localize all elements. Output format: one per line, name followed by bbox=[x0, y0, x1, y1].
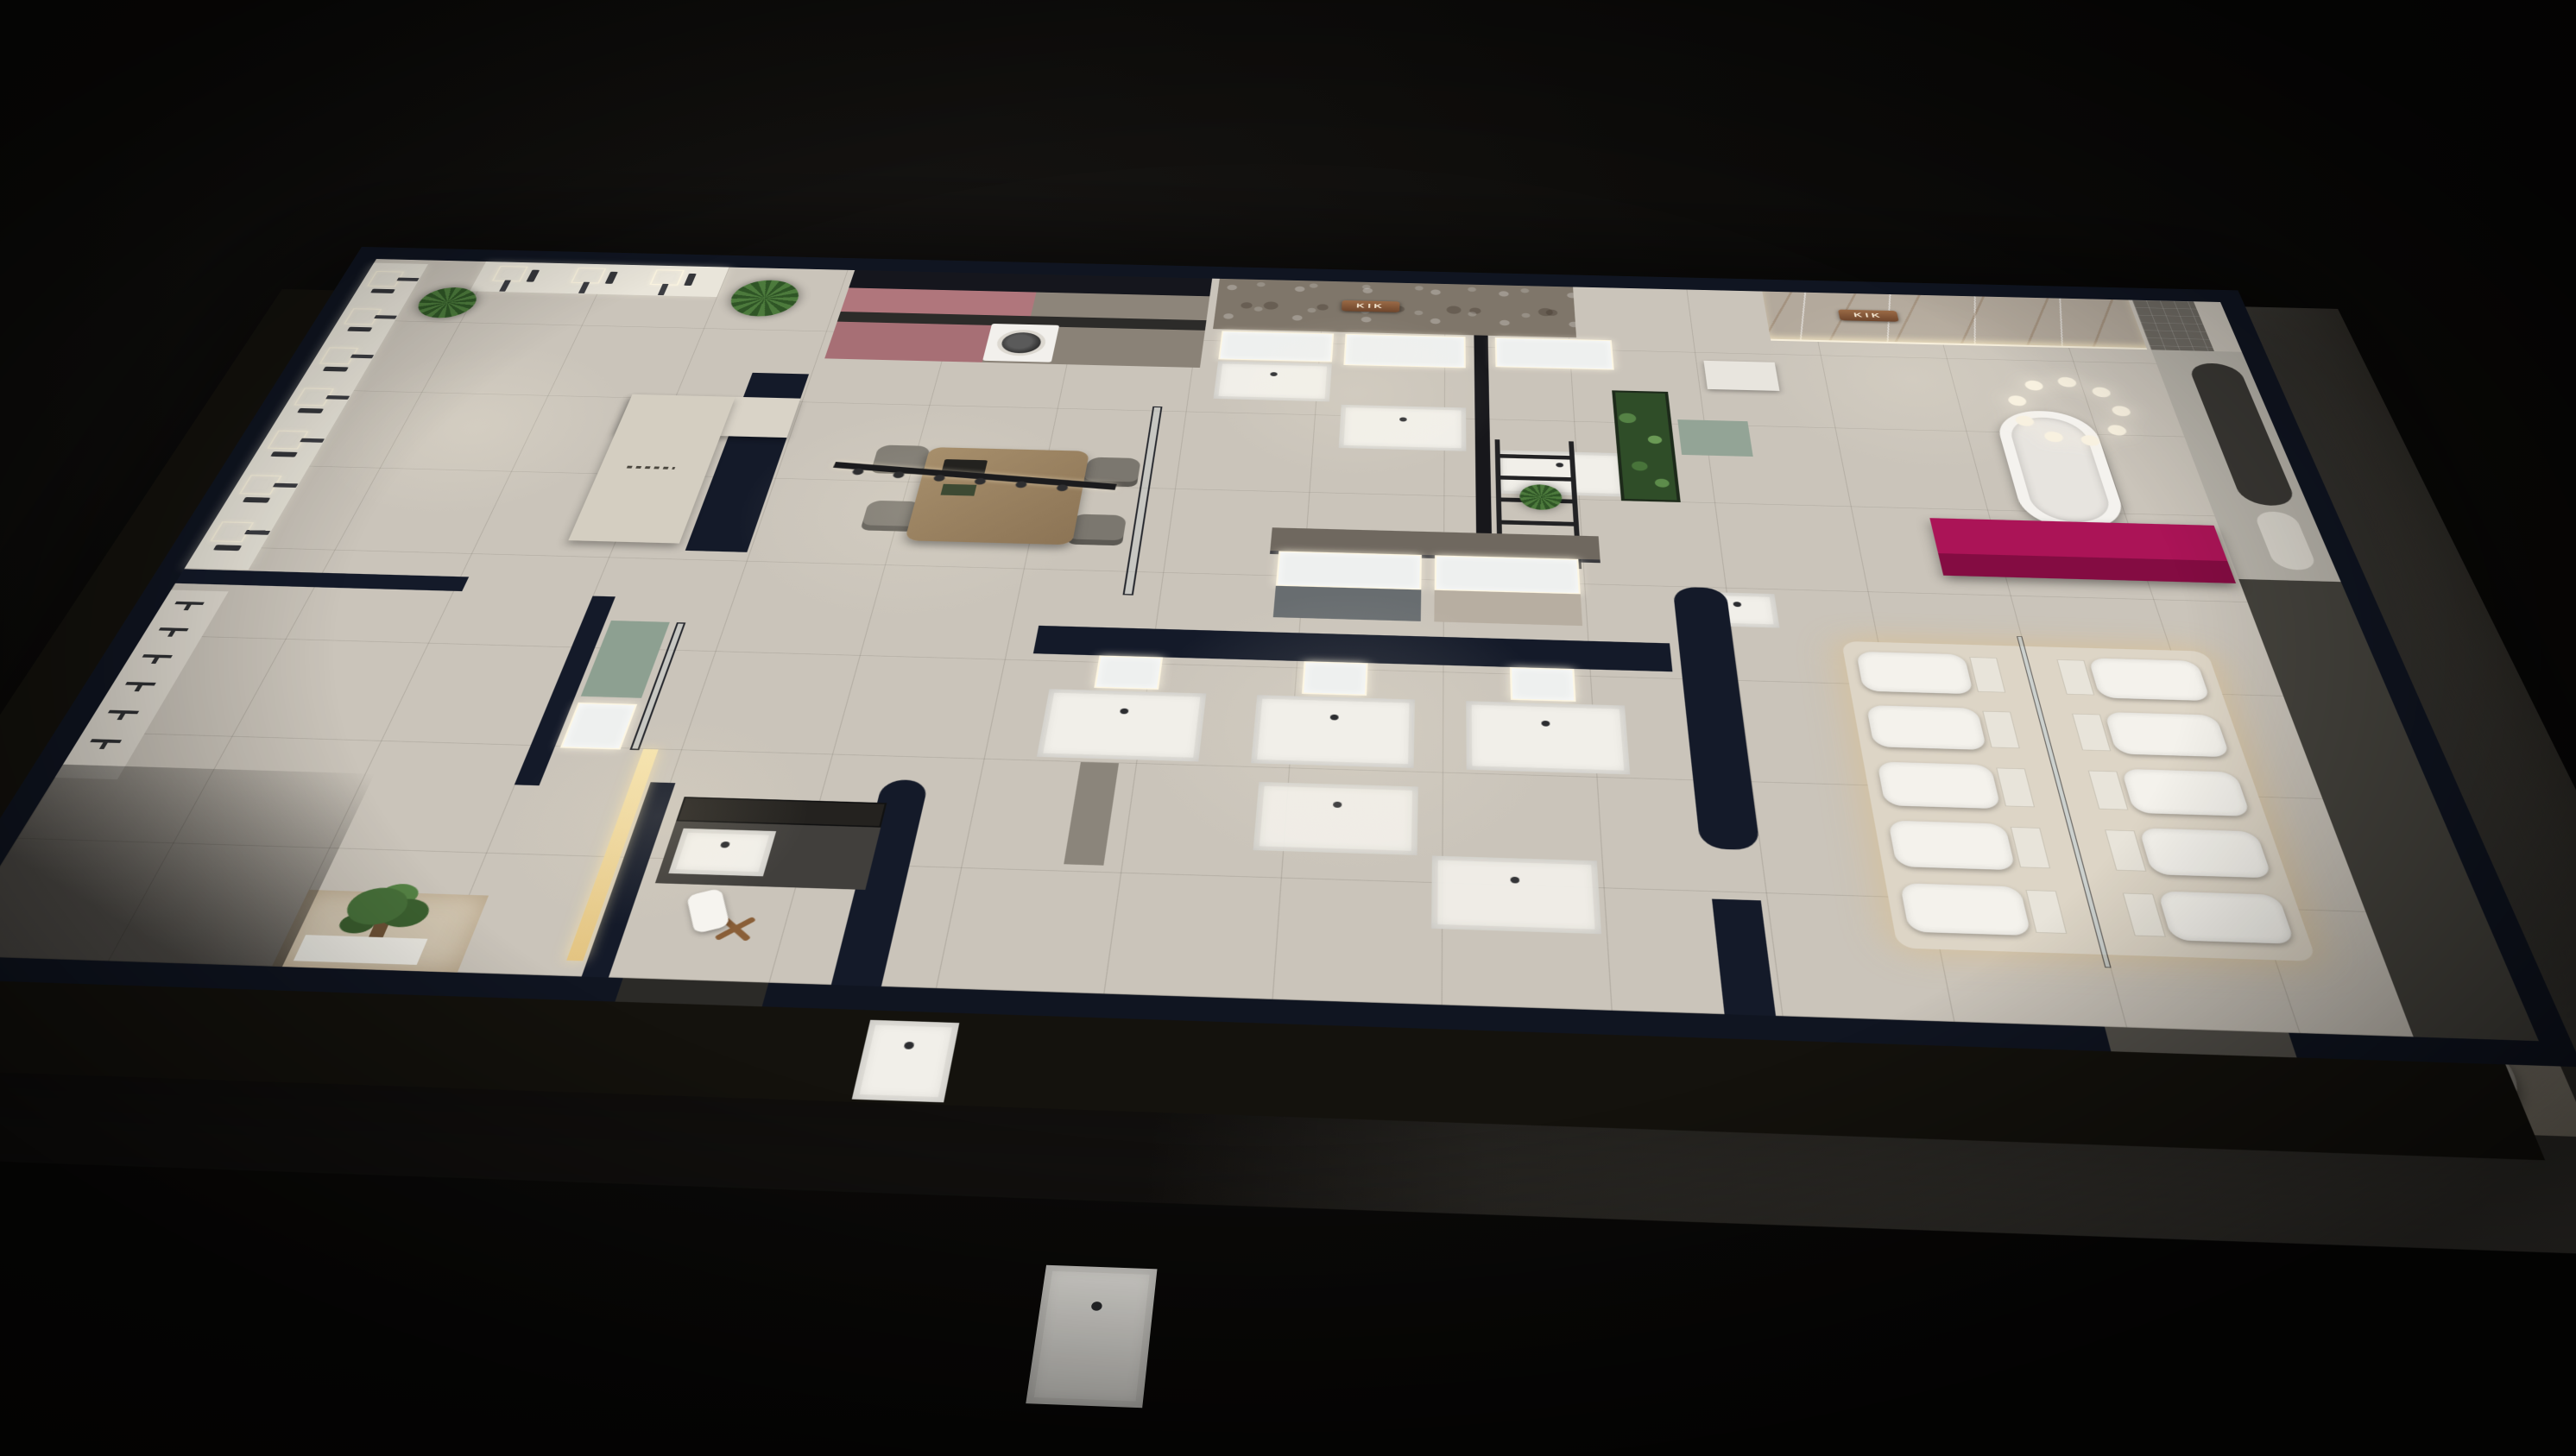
faucet-display-row bbox=[91, 707, 157, 721]
toilet-tank bbox=[2105, 830, 2147, 872]
display-toilet bbox=[2029, 654, 2212, 703]
white-cabinet bbox=[1704, 361, 1780, 391]
shower-column-unit bbox=[477, 262, 564, 292]
toilet-bowl bbox=[1877, 761, 2001, 809]
bottom-vanity-unit bbox=[1466, 665, 1632, 790]
faucet-display-row bbox=[73, 736, 140, 751]
kik-sign-marble: KIK bbox=[1838, 309, 1899, 321]
toilet-bowl bbox=[2105, 712, 2231, 757]
island-vanity-cabinet-beige bbox=[1434, 590, 1582, 626]
sage-room-mirror bbox=[560, 703, 637, 750]
toilet-bowl bbox=[2139, 829, 2273, 879]
kik-sign-stone: KIK bbox=[1342, 300, 1400, 312]
island-vanity-mirror bbox=[1435, 555, 1581, 594]
shower-column-unit bbox=[350, 266, 426, 303]
island-vanity-basin bbox=[1253, 782, 1418, 855]
shower-column-unit bbox=[189, 515, 278, 564]
vanity-basin bbox=[1466, 701, 1630, 774]
toilet-tank bbox=[1969, 657, 2005, 692]
side-door-gap bbox=[616, 978, 769, 1006]
shower-column-unit bbox=[219, 469, 306, 514]
toilet-bowl bbox=[1856, 652, 1973, 694]
sage-wall-hung-cabinet bbox=[1677, 419, 1752, 457]
vanity-basin bbox=[1037, 689, 1206, 761]
island-vanity-cabinet-grey bbox=[1273, 586, 1422, 621]
display-toilet bbox=[2059, 765, 2252, 818]
dining-table bbox=[905, 447, 1089, 545]
vanity-mirror bbox=[1510, 667, 1576, 702]
corner-basin bbox=[852, 1020, 960, 1103]
display-toilet bbox=[2043, 709, 2231, 760]
toilet-bowl bbox=[1888, 821, 2016, 871]
vanity-mirror bbox=[1218, 331, 1334, 362]
display-toilet bbox=[1856, 650, 2034, 698]
toilet-display-platform bbox=[1841, 641, 2317, 961]
showroom-building: KIK bbox=[0, 247, 2576, 1067]
shower-column-unit bbox=[636, 265, 720, 295]
toilet-bowl bbox=[2121, 768, 2251, 816]
vanity-basin bbox=[1251, 695, 1415, 768]
laundry-zone bbox=[824, 270, 1212, 368]
toilet-tank bbox=[1982, 710, 2020, 747]
desk-logo-mark bbox=[627, 466, 675, 470]
faucet-display-row bbox=[109, 679, 174, 693]
shower-column-unit bbox=[557, 263, 642, 293]
washing-machine bbox=[982, 324, 1059, 362]
shower-column-unit bbox=[248, 425, 331, 469]
display-toilet bbox=[1888, 818, 2081, 874]
ground-plane: KIK bbox=[0, 214, 2576, 1261]
vanity-basin bbox=[1339, 405, 1467, 451]
stone-feature-wall: KIK bbox=[1213, 279, 1576, 337]
green-plant-wall bbox=[1612, 390, 1681, 502]
faucet-display-row bbox=[159, 599, 222, 612]
faucet-display-row bbox=[142, 625, 206, 638]
palm-plant bbox=[411, 287, 483, 318]
display-toilet bbox=[1877, 760, 2065, 813]
toilet-tank bbox=[2123, 893, 2166, 937]
shower-column-unit bbox=[326, 303, 403, 341]
shelf-plant bbox=[1519, 484, 1563, 511]
night-render-canvas: { "scene": { "type": "3D isometric night… bbox=[0, 0, 2576, 1456]
marble-feature-wall: KIK bbox=[1762, 291, 2147, 350]
shower-display-wall-top bbox=[470, 262, 729, 297]
toilet-grid bbox=[1856, 650, 2299, 950]
toilet-bowl bbox=[2157, 891, 2295, 943]
vanity-mirror bbox=[1094, 655, 1163, 690]
toilet-tank bbox=[2026, 890, 2068, 934]
faucet-display-wall bbox=[55, 589, 229, 779]
bottom-vanity-row bbox=[1032, 654, 1670, 798]
vanity-mirror bbox=[1302, 661, 1368, 696]
palm-plant bbox=[724, 280, 805, 318]
shower-display-wall-left bbox=[185, 262, 428, 569]
charcoal-vanity bbox=[655, 821, 881, 890]
display-toilet bbox=[2092, 887, 2296, 947]
toilet-tank bbox=[2088, 770, 2129, 810]
bottom-vanity-unit bbox=[1034, 654, 1210, 778]
shower-column-unit bbox=[275, 382, 357, 424]
toilet-tank bbox=[2056, 659, 2094, 695]
toilet-tank bbox=[2011, 827, 2050, 868]
faucet-display-row bbox=[126, 652, 191, 665]
display-toilet bbox=[1899, 881, 2099, 941]
partition-wall bbox=[175, 569, 469, 591]
display-toilet bbox=[2074, 824, 2273, 880]
shower-column-unit bbox=[301, 342, 381, 381]
vanity-basin bbox=[668, 829, 776, 877]
wall-stub bbox=[1712, 898, 1776, 1016]
vanity-basin bbox=[1214, 361, 1332, 401]
night-backdrop: KIK bbox=[0, 0, 2576, 1456]
magenta-display-cabinet bbox=[1929, 518, 2236, 583]
vanity-mirror bbox=[1495, 337, 1614, 370]
toilet-tank bbox=[2072, 713, 2111, 751]
vanity-mirror bbox=[1344, 334, 1466, 369]
display-toilet bbox=[1866, 703, 2049, 754]
freestanding-vanity bbox=[1026, 1265, 1157, 1409]
island-vanity-mirror bbox=[1276, 551, 1422, 589]
toilet-bowl bbox=[1866, 705, 1987, 750]
island-vanity-basin bbox=[1431, 855, 1601, 934]
toilet-tank bbox=[1996, 767, 2035, 807]
toilet-bowl bbox=[2088, 658, 2211, 701]
bottom-vanity-unit bbox=[1250, 660, 1416, 785]
toilet-bowl bbox=[1900, 883, 2031, 936]
white-planter bbox=[294, 935, 428, 965]
black-partition bbox=[1474, 335, 1493, 543]
